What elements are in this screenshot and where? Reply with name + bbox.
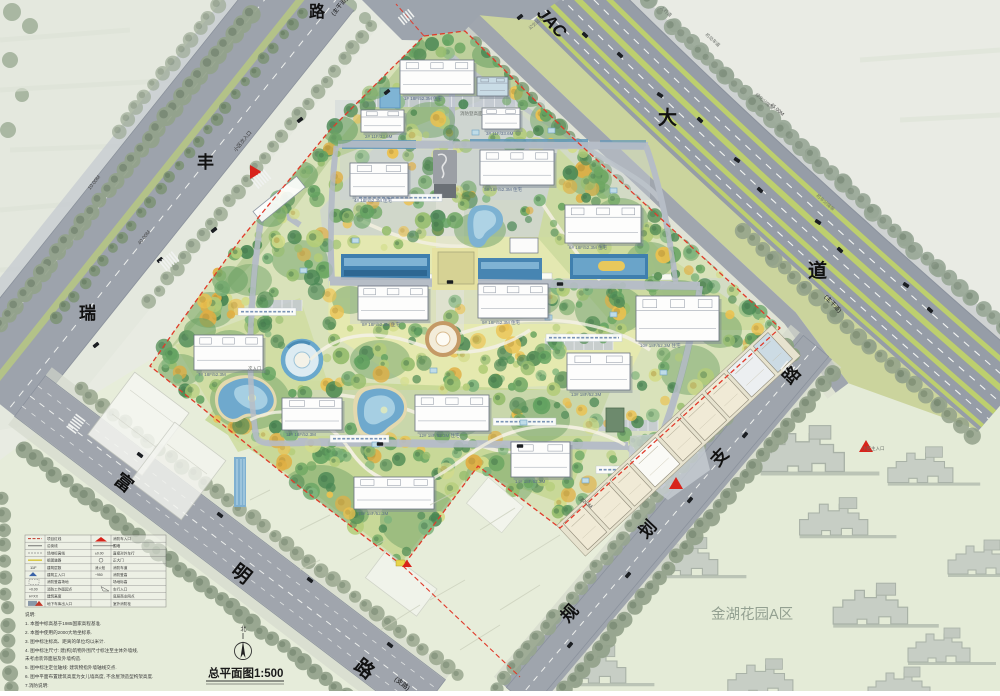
svg-text:项目红线: 项目红线 — [47, 536, 62, 541]
svg-text:10# 18F/52.3M 住宅: 10# 18F/52.3M 住宅 — [640, 342, 681, 348]
svg-text:次入口: 次入口 — [248, 365, 262, 372]
svg-text:场地标高: 场地标高 — [113, 579, 128, 584]
svg-text:8# 18F/52.3M 住宅: 8# 18F/52.3M 住宅 — [362, 321, 401, 327]
svg-text:总平面图1:500: 总平面图1:500 — [208, 666, 283, 680]
svg-text:1# 18F/52.3M 住宅: 1# 18F/52.3M 住宅 — [404, 95, 443, 101]
svg-text:消防工作面起点: 消防工作面起点 — [47, 586, 73, 591]
svg-text:1. 本图中标高基于1985国家高程基准.: 1. 本图中标高基于1985国家高程基准. — [25, 620, 101, 627]
svg-text:路: 路 — [309, 2, 326, 21]
svg-text:道: 道 — [808, 259, 827, 282]
svg-text:消防车入口: 消防车入口 — [113, 536, 131, 541]
svg-text:消防登高面: 消防登高面 — [460, 110, 483, 117]
svg-text:室外消防栓: 室外消防栓 — [113, 601, 131, 606]
svg-text:消防登高: 消防登高 — [113, 572, 128, 577]
svg-text:建筑主入口: 建筑主入口 — [47, 572, 65, 577]
svg-text:4. 图中标注尺寸: 建(构)筑物外围尺寸标注至主体外墙线,: 4. 图中标注尺寸: 建(构)筑物外围尺寸标注至主体外墙线, — [25, 647, 138, 654]
svg-text:15# 18F/52.3M: 15# 18F/52.3M — [358, 511, 389, 516]
svg-text:沿街线: 沿街线 — [47, 543, 58, 548]
svg-text:6. 图中平面布置建筑高度为女儿墙高度, 不含屋顶造型构架高: 6. 图中平面布置建筑高度为女儿墙高度, 不含屋顶造型构架高度. — [25, 673, 153, 680]
svg-text:7# 18F/52.3M: 7# 18F/52.3M — [198, 372, 226, 377]
svg-text:2. 本图中使用的2000大地坐标系.: 2. 本图中使用的2000大地坐标系. — [25, 629, 92, 636]
svg-text:12# 18F/52.3M 住宅: 12# 18F/52.3M 住宅 — [419, 432, 460, 438]
svg-text:13# 18F/52.3M: 13# 18F/52.3M — [571, 392, 602, 397]
svg-text:大: 大 — [658, 106, 677, 129]
svg-text:3. 图中标注标高、距离的单位均以米计.: 3. 图中标注标高、距离的单位均以米计. — [25, 638, 105, 645]
svg-text:±0.00: ±0.00 — [95, 552, 104, 556]
svg-text:14# 18F/52.3M: 14# 18F/52.3M — [515, 479, 546, 484]
svg-text:建筑高度: 建筑高度 — [47, 594, 62, 599]
svg-text:未考虑装饰面层及外墙构造.: 未考虑装饰面层及外墙构造. — [25, 655, 81, 662]
svg-text:金湖花园A区: 金湖花园A区 — [711, 606, 793, 623]
svg-text:地下车库出入口: 地下车库出入口 — [47, 601, 73, 606]
svg-text:丰: 丰 — [197, 152, 214, 172]
svg-text:9# 18F/52.3M 住宅: 9# 18F/52.3M 住宅 — [482, 319, 521, 325]
svg-text:消防登高场地: 消防登高场地 — [47, 579, 69, 584]
svg-text:3# 11F/33.6M: 3# 11F/33.6M — [486, 131, 514, 136]
svg-text:4# 18F/52.3M 住宅: 4# 18F/52.3M 住宅 — [354, 197, 393, 203]
svg-text:~950: ~950 — [95, 573, 103, 577]
svg-text:6# 18F/52.3M 住宅: 6# 18F/52.3M 住宅 — [569, 244, 608, 250]
svg-text:场地标高线: 场地标高线 — [47, 550, 65, 555]
svg-text:直接对外车行: 直接对外车行 — [113, 550, 135, 555]
svg-text:消火栓: 消火栓 — [95, 565, 106, 570]
svg-text:7.消防说明:: 7.消防说明: — [25, 682, 48, 689]
svg-text:消防车道: 消防车道 — [113, 565, 128, 570]
svg-text:车行入口: 车行入口 — [113, 586, 128, 591]
svg-text:北: 北 — [241, 625, 247, 633]
svg-text:11# 18F/52.3M: 11# 18F/52.3M — [286, 432, 316, 437]
svg-text:2# 11F/33.6M: 2# 11F/33.6M — [365, 134, 393, 139]
svg-text:小区主入口: 小区主入口 — [862, 445, 885, 452]
svg-text:H=XX: H=XX — [29, 595, 39, 599]
svg-text:5# 18F/52.3M 住宅: 5# 18F/52.3M 住宅 — [484, 186, 523, 192]
svg-text:建筑层数: 建筑层数 — [47, 565, 62, 570]
svg-text:正大门: 正大门 — [113, 558, 124, 563]
svg-text:组团道路: 组团道路 — [47, 558, 62, 563]
svg-text:说明:: 说明: — [25, 611, 35, 618]
svg-text:11F: 11F — [30, 565, 37, 570]
svg-text:底层商业网点: 底层商业网点 — [113, 594, 135, 599]
svg-text:+0.00: +0.00 — [29, 588, 38, 592]
svg-text:5. 图中标注定位轴线: 建筑物指外墙轴线交点.: 5. 图中标注定位轴线: 建筑物指外墙轴线交点. — [25, 664, 117, 671]
svg-text:瑞: 瑞 — [79, 304, 96, 323]
